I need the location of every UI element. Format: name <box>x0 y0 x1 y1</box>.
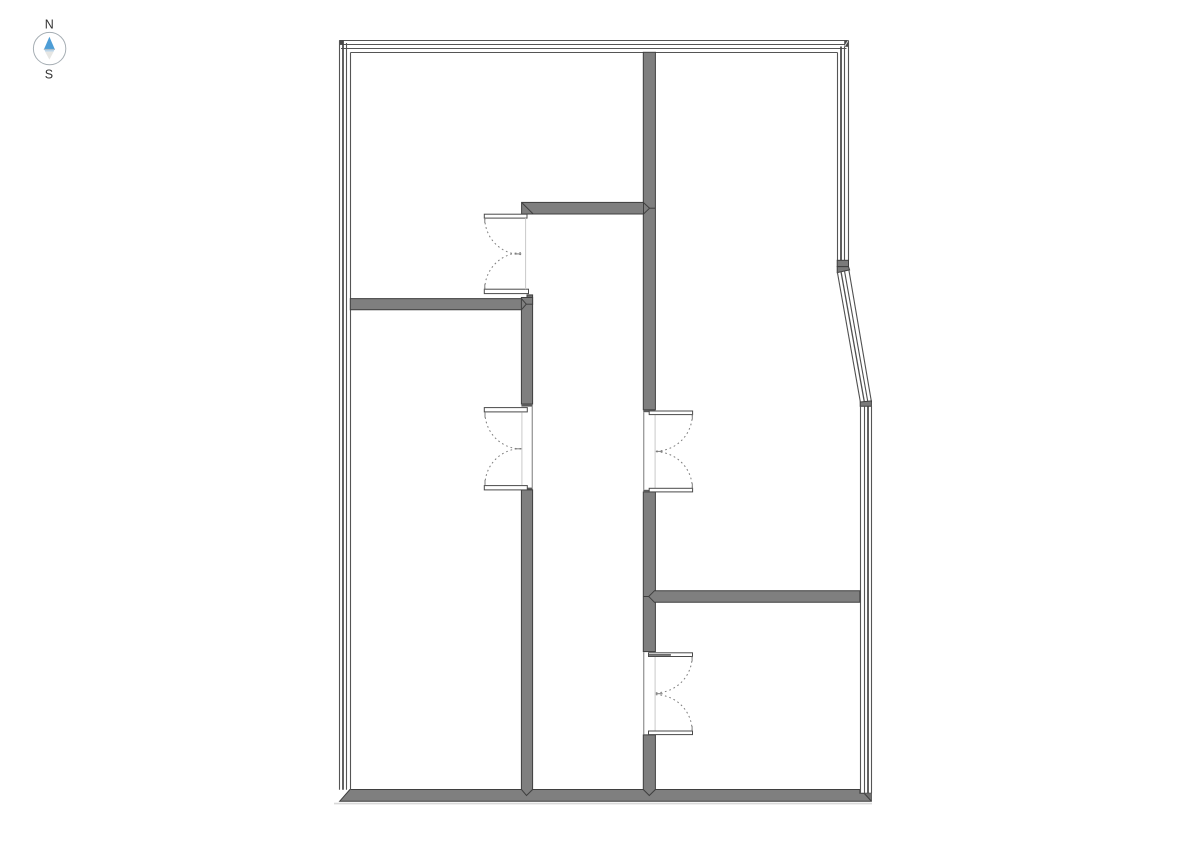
svg-text:N: N <box>45 18 54 32</box>
svg-text:S: S <box>45 68 53 82</box>
